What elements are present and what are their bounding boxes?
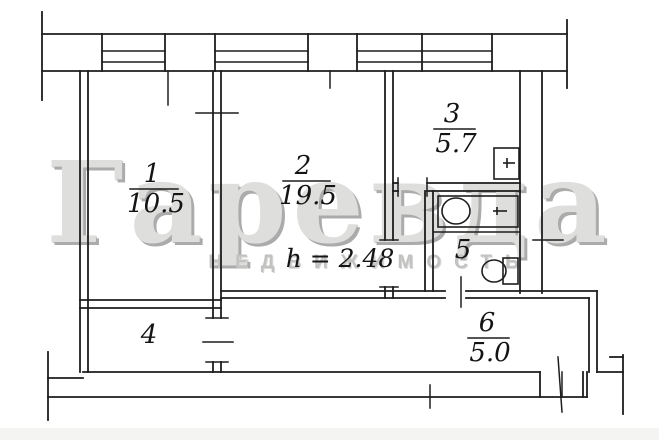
ceiling-height-note: h = 2.48 [286, 244, 395, 273]
room2-label: 2 19.5 [279, 151, 337, 211]
room3-label: 3 5.7 [434, 99, 477, 159]
bathroom-left-wall [425, 191, 433, 291]
room1-area: 10.5 [127, 189, 185, 219]
floor-plan-drawing: 1 10.5 2 19.5 3 5.7 4 5 6 5.0 h = 2.48 [0, 0, 659, 440]
hallway-top-wall [221, 291, 597, 298]
kitchen-bottom-wall [393, 178, 520, 196]
dimension-ticks [168, 71, 330, 105]
room6-label: 6 5.0 [468, 308, 511, 368]
room2-area: 19.5 [279, 181, 337, 211]
floor-plan: Гаревда НЕДВИЖИМОСТЬ [0, 0, 659, 440]
room3-area: 5.7 [435, 129, 477, 159]
right-wall [520, 71, 563, 293]
window-room2-icon [215, 51, 308, 62]
room1-room2-wall [196, 71, 238, 372]
porch-outline [597, 355, 623, 414]
room1-label: 1 10.5 [127, 159, 185, 219]
room2-number: 2 [294, 151, 312, 181]
room3-number: 3 [444, 99, 461, 129]
left-wall [80, 71, 88, 372]
room6-number: 6 [479, 308, 496, 338]
room4-number: 4 [140, 320, 158, 350]
room1-number: 1 [144, 159, 161, 189]
toilet-icon [482, 258, 518, 284]
top-wall [42, 12, 567, 100]
room5-label: 5 [455, 235, 472, 265]
room6-area: 5.0 [469, 338, 510, 368]
sink-icon [494, 148, 519, 179]
hallway-right-wall [589, 291, 597, 372]
window-room1-icon [102, 51, 165, 62]
room5-number: 5 [455, 235, 472, 265]
entrance-door-icon [558, 357, 562, 412]
room4-label: 4 [140, 320, 158, 350]
room1-room4-wall [80, 300, 221, 308]
room4-door-icon [203, 318, 233, 362]
window-kitchen-icon [357, 51, 492, 62]
bathtub-icon [433, 196, 520, 232]
